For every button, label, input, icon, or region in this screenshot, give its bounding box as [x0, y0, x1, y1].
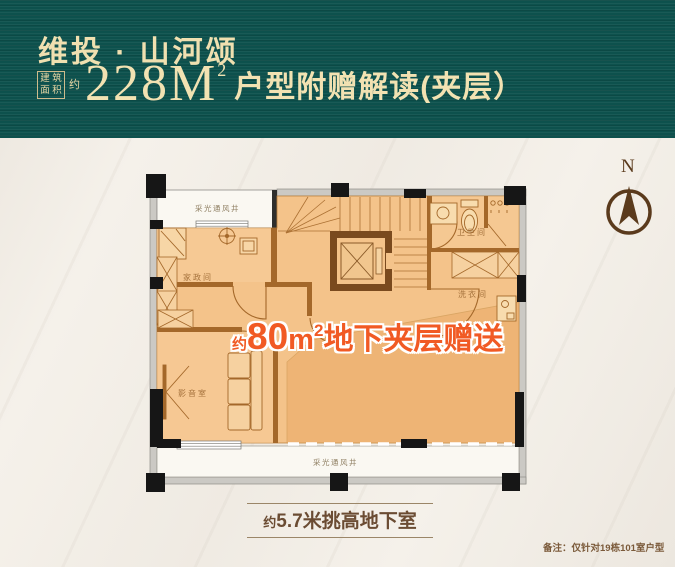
- promo-unit: m: [288, 324, 314, 356]
- wardrobe-panels-icon: [452, 252, 519, 278]
- side-table-icon: [240, 238, 257, 254]
- room-label-housekeeping: 家政间: [183, 272, 213, 283]
- elevator-shaft: [330, 231, 392, 291]
- promo-suffix: 地下夹层赠送: [323, 323, 503, 356]
- promo-mezzanine-text: 约80m2地下夹层赠送: [232, 314, 503, 358]
- poster-page: 维投 · 山河颂 建 筑 面 积 约 228M2 户型附赠解读(夹层） N: [0, 0, 675, 567]
- basement-height-label: 约5.7米挑高地下室: [247, 503, 433, 538]
- light-well-bottom-label: 采光通风井: [313, 457, 358, 468]
- sofa-icon: [228, 351, 262, 430]
- room-label-laundry: 洗衣间: [458, 289, 488, 300]
- bottom-window: [177, 441, 241, 449]
- height-approx: 约: [263, 515, 276, 530]
- vanity-sink-icon: [430, 203, 457, 224]
- promo-approx: 约: [232, 336, 247, 353]
- light-well-top-label: 采光通风井: [195, 203, 240, 214]
- room-label-bathroom: 卫生间: [457, 227, 487, 238]
- floorplan-drawing: [0, 0, 675, 567]
- promo-number: 80: [247, 316, 288, 357]
- closet-nook-icon: [158, 310, 193, 328]
- room-label-av-room: 影音室: [178, 388, 208, 399]
- promo-superscript: 2: [314, 321, 323, 340]
- bed-icon: [159, 228, 186, 259]
- height-text: 5.7米挑高地下室: [276, 511, 416, 532]
- footnote: 备注：仅针对19栋101室户型: [543, 540, 664, 554]
